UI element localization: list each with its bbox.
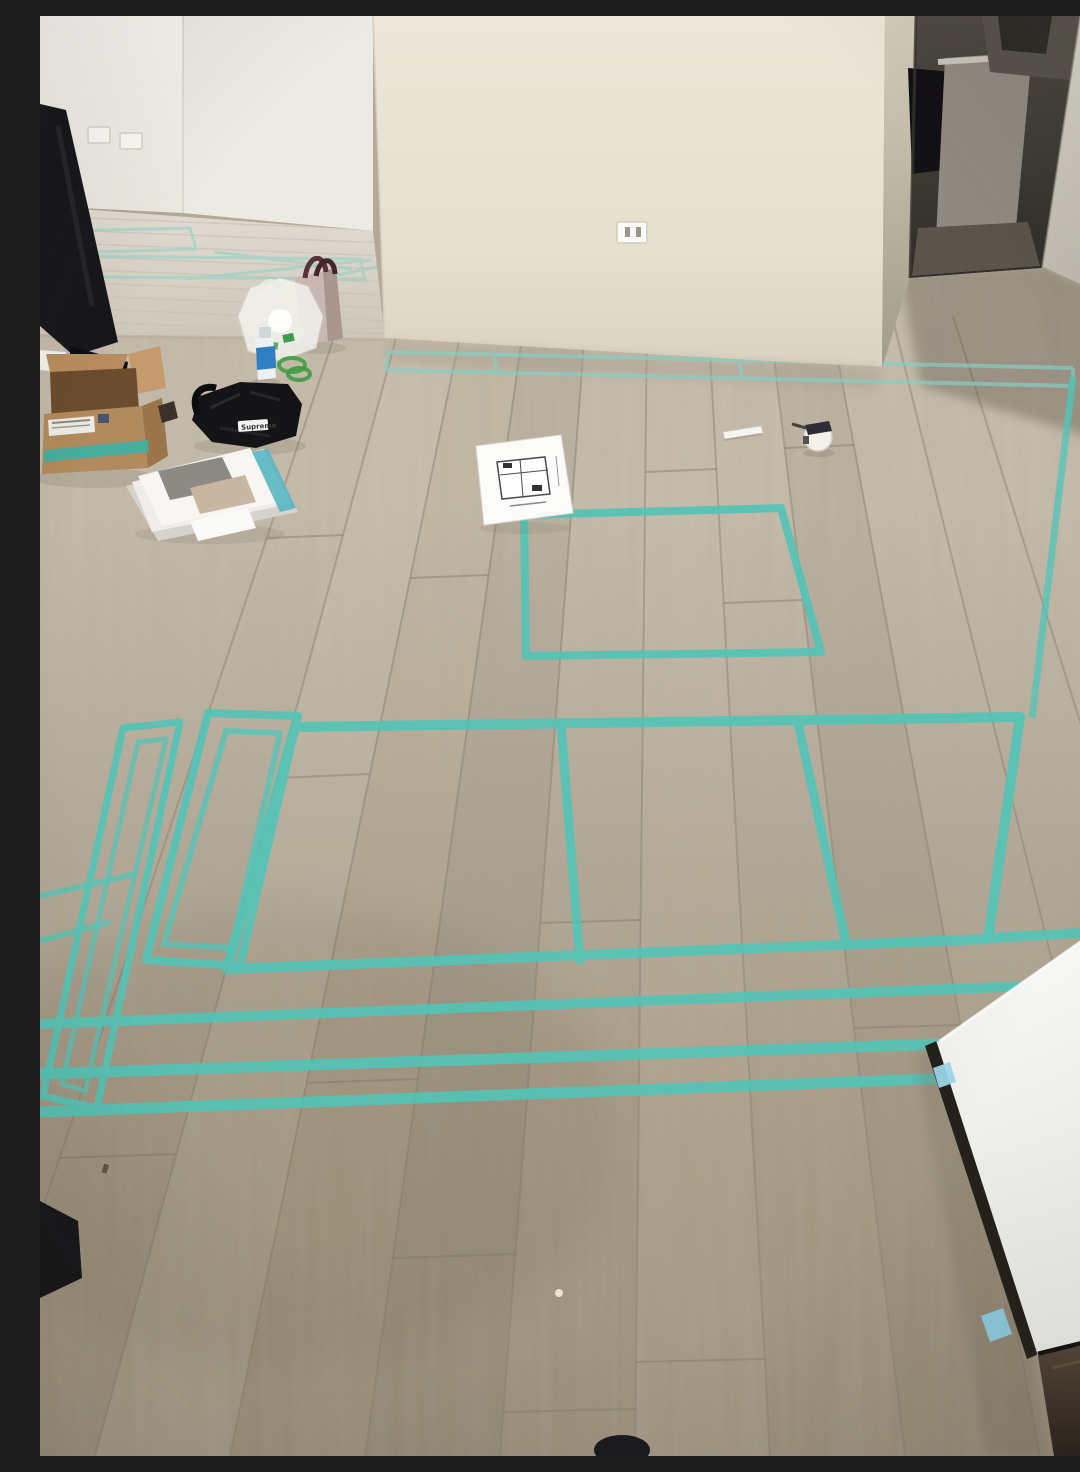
photo-vignette bbox=[40, 16, 1080, 1456]
scene-canvas: Supreme bbox=[40, 16, 1080, 1456]
photo-room-floor-tape-markings: Supreme Photo of an empty apartment room… bbox=[40, 16, 1080, 1456]
